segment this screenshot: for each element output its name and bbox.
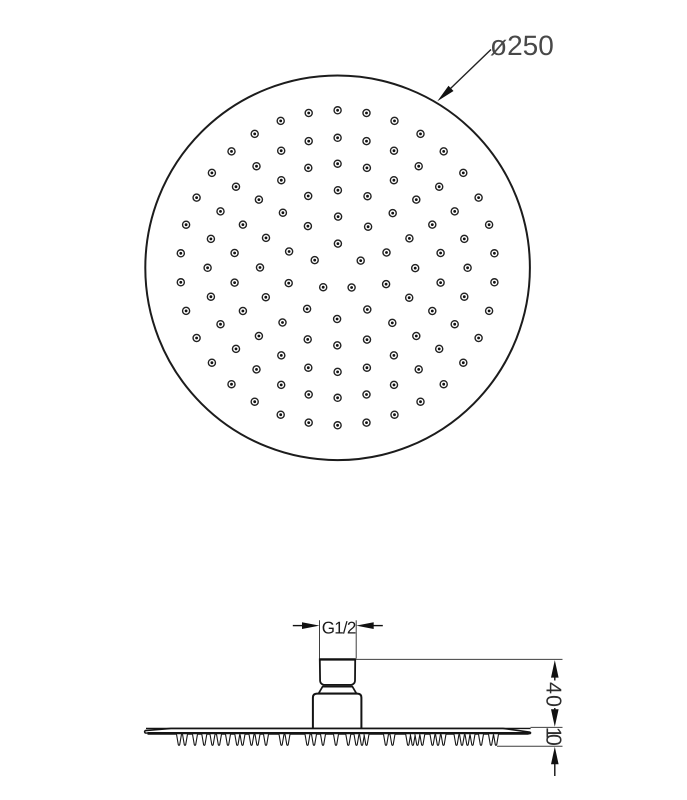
svg-text:ø250: ø250 xyxy=(490,30,554,61)
svg-text:10: 10 xyxy=(542,727,566,746)
svg-text:G1/2: G1/2 xyxy=(322,619,357,638)
svg-text:40: 40 xyxy=(541,682,565,707)
